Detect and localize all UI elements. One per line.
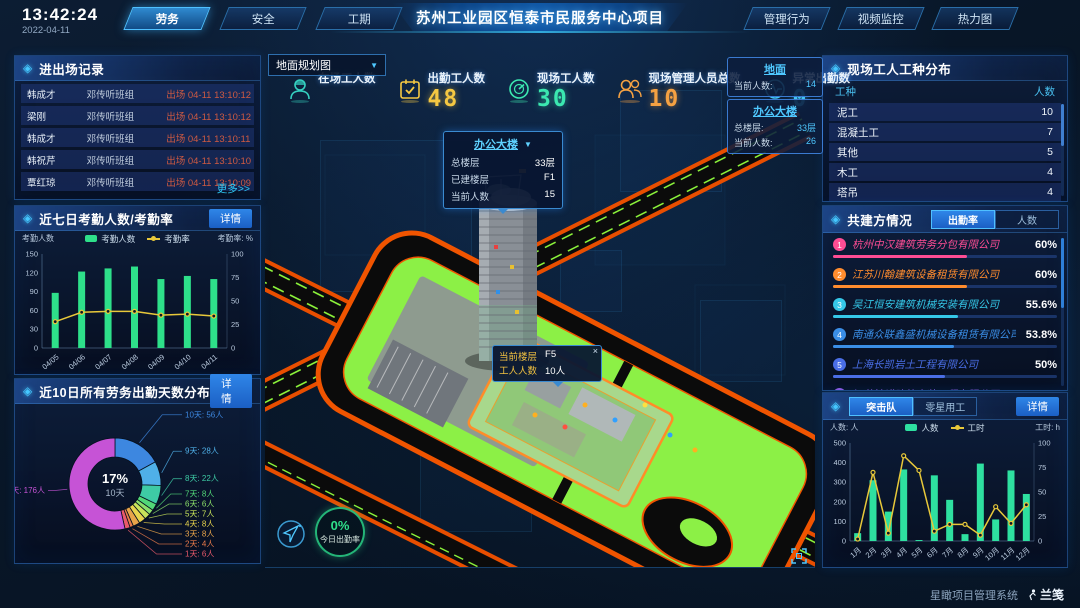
worker-name: 覃红琼 [27,175,87,189]
entry-exit-row: 梁刚邓传听班组出场 04-11 13:10:12 [21,106,254,125]
svg-text:50: 50 [231,297,239,306]
stat-value: 48 [428,88,486,111]
line-swatch-icon [147,238,160,240]
tab-headcount-label: 人数 [1017,212,1037,227]
scrollbar[interactable] [1061,238,1064,386]
worker-type-row: 木工4 [829,163,1061,181]
progress-fill [833,255,967,258]
column-header-count: 人数 [1034,84,1055,99]
progress-fill [833,375,945,378]
svg-text:60: 60 [30,306,38,315]
detail-button[interactable]: 详情 [209,209,252,228]
progress-fill [833,315,958,318]
right-axis-label: 工时: h [1035,422,1060,433]
svg-text:6天: 6人: 6天: 6人 [185,500,214,509]
diamond-icon: ◈ [23,61,32,75]
tooltip-row-value: F5 [545,349,556,363]
svg-text:04/09: 04/09 [146,352,166,371]
svg-text:90: 90 [30,287,38,296]
progress-track [833,375,1057,378]
tab-odd-jobs[interactable]: 零星用工 [913,397,977,416]
legend-item: 工时 [951,422,985,434]
legend-label: 人数 [921,422,938,434]
worker-count: 4 [1047,186,1053,198]
worker-count: 10 [1041,106,1053,118]
chevron-down-icon[interactable]: ▼ [524,140,532,149]
svg-text:04/10: 04/10 [173,352,193,371]
worker-name: 韩祝芹 [27,153,87,167]
card-row-label: 当前人数: [734,79,773,92]
tab-video-monitor-label: 视频监控 [858,11,904,27]
svg-text:30: 30 [30,325,38,334]
chevron-down-icon: ▼ [370,61,378,70]
building-popup[interactable]: 办公大楼 ▼ 总楼层33层 已建楼层F1 当前人数15 [443,131,563,209]
stat-site-workers: 现场工人数 30 [507,70,595,111]
tooltip-row-label: 当前楼层 [499,349,537,363]
svg-text:100: 100 [1038,439,1051,448]
svg-text:11月: 11月 [999,545,1017,562]
brand-logo: 兰笺 [1028,586,1064,603]
building-popup-title[interactable]: 办公大楼 [474,136,518,152]
bar-swatch-icon [905,424,917,431]
time-display: 13:42:24 [22,6,98,25]
exit-event: 出场 04-11 13:10:11 [166,131,248,145]
svg-text:25: 25 [1038,512,1046,521]
svg-text:10天: 10天 [105,488,124,498]
people-icon [617,77,643,103]
attendance-rate: 60% [1035,239,1057,251]
rank-badge: 2 [833,268,846,281]
line-swatch-icon [951,427,964,429]
svg-text:400: 400 [833,458,846,467]
left-axis-label: 考勤人数 [22,233,54,244]
assault-team-panel: ◈ 突击队零星用工 详情 人数: 人 人数 工时 工时: h 010020030… [822,392,1068,568]
progress-track [833,315,1057,318]
svg-text:0: 0 [34,344,38,353]
tab-attendance-rate-label: 出勤率 [948,212,978,227]
svg-text:0天: 176人: 0天: 176人 [15,486,45,495]
svg-text:10天: 56人: 10天: 56人 [185,410,223,419]
assault-tab-group: 突击队零星用工 [849,397,977,416]
worker-type-row: 泥工10 [829,103,1061,121]
footer: 星瞰项目管理系统 兰笺 [930,586,1064,603]
exit-event: 出场 04-11 13:10:10 [166,153,248,167]
attendance-rate: 50% [1035,359,1057,371]
team-name: 邓传听班组 [87,109,167,123]
ground-info-card[interactable]: 地面 当前人数:14 [727,57,823,97]
partner-row[interactable]: 4南通众联鑫盛机械设备租赁有限公司53.8% [823,323,1067,353]
svg-text:12月: 12月 [1014,545,1032,562]
legend-label: 考勤人数 [101,233,135,245]
left-tab-group: 劳务安全工期 [128,7,398,30]
svg-text:120: 120 [25,268,38,277]
svg-text:300: 300 [833,478,846,487]
worker-name: 梁刚 [27,109,87,123]
tab-heatmap-label: 热力图 [958,11,993,27]
tab-video-monitor[interactable]: 视频监控 [837,7,924,30]
map-view-value: 地面规划图 [276,57,331,73]
compass-icon [276,519,306,549]
company-name: 南通众联鑫盛机械设备租赁有限公司 [852,327,1016,342]
attendance-rate-value: 0% [331,519,350,532]
svg-text:3月: 3月 [879,545,894,559]
legend-label: 考勤率 [164,233,190,245]
attendance-bar-line-chart: 0306090120150025507510004/0504/0604/0704… [15,246,256,372]
svg-text:200: 200 [833,497,846,506]
worker-type: 混凝土工 [837,125,879,140]
svg-text:25: 25 [231,320,239,329]
attendance-rate-label: 今日出勤率 [320,534,360,545]
svg-text:500: 500 [833,439,846,448]
detail-button[interactable]: 详情 [210,374,252,408]
svg-text:150: 150 [25,250,38,259]
tab-headcount[interactable]: 人数 [995,210,1059,229]
card-row-value: 33层 [797,121,816,134]
date-display: 2022-04-11 [22,26,98,36]
assault-bar-line-chart: 010020030040050002550751001月2月3月4月5月6月7月… [823,435,1063,565]
right-axis-label: 考勤率: % [217,233,253,244]
distribution-donut-panel: ◈ 近10日所有劳务出勤天数分布 详情 10天: 56人9天: 28人8天: 2… [14,378,261,564]
stat-label: 现场工人数 [537,70,595,86]
tab-assault-team[interactable]: 突击队 [849,397,913,416]
svg-text:75: 75 [1038,463,1046,472]
tooltip-row-value: 10人 [545,363,565,377]
partner-row[interactable]: 1杭州中汉建筑劳务分包有限公司60% [823,233,1067,263]
popup-row-label: 已建楼层 [451,172,489,186]
team-name: 邓传听班组 [87,131,167,145]
card-title: 办公大楼 [734,103,816,119]
progress-track [833,285,1057,288]
rank-badge: 6 [833,388,846,391]
svg-text:0: 0 [231,344,235,353]
panel-title: 共建方情况 [847,210,912,229]
logo-mark-icon [1028,589,1037,601]
svg-text:4天: 8人: 4天: 8人 [185,520,214,529]
rank-badge: 4 [833,328,846,341]
svg-text:3天: 8人: 3天: 8人 [185,530,214,539]
tab-labor[interactable]: 劳务 [123,7,210,30]
partner-tab-group: 出勤率人数 [931,210,1059,229]
tooltip-row-label: 工人人数 [499,363,537,377]
rank-badge: 3 [833,298,846,311]
rank-badge: 5 [833,358,846,371]
panel-title: 现场工人工种分布 [847,59,951,78]
tab-schedule[interactable]: 工期 [315,7,402,30]
card-row-label: 当前人数: [734,136,773,149]
entry-exit-row: 韩成才邓传听班组出场 04-11 13:10:12 [21,84,254,103]
svg-text:1天: 6人: 1天: 6人 [185,550,214,559]
svg-text:1月: 1月 [848,545,863,559]
svg-text:0: 0 [842,537,846,546]
team-name: 邓传听班组 [87,153,167,167]
svg-text:04/05: 04/05 [40,352,60,371]
svg-text:75: 75 [231,273,239,282]
partner-row[interactable]: 2江苏川翰建筑设备租赁有限公司60% [823,263,1067,293]
svg-text:100: 100 [231,250,244,259]
diamond-icon: ◈ [23,211,32,225]
legend-item: 考勤率 [147,233,190,245]
card-row-value: 14 [806,79,816,92]
gauge-icon [507,77,531,103]
worker-type: 塔吊 [837,185,858,200]
legend-label: 工时 [968,422,985,434]
floor-tooltip: × 当前楼层F5 工人人数10人 [492,345,602,382]
popup-row-label: 总楼层 [451,155,480,169]
attendance-chart-panel: ◈ 近七日考勤人数/考勤率 详情 考勤人数 考勤人数 考勤率 考勤率: % 03… [14,205,261,375]
right-tab-group: 管理行为视频监控热力图 [748,7,1014,30]
bar-swatch-icon [85,235,97,242]
worker-type-row: 其他5 [829,143,1061,161]
svg-text:7天: 8人: 7天: 8人 [185,490,214,499]
worker-type-row: 塔吊4 [829,183,1061,201]
partner-row[interactable]: 3吴江恒安建筑机械安装有限公司55.6% [823,293,1067,323]
popup-row-value: 15 [544,189,555,203]
partner-row[interactable]: 5上海长凯岩土工程有限公司50% [823,353,1067,383]
svg-text:8月: 8月 [956,545,971,559]
popup-row-value: F1 [544,172,555,186]
worker-type: 木工 [837,165,858,180]
tab-safety-label: 安全 [252,11,275,27]
worker-icon [288,77,312,103]
entry-exit-row: 韩成才邓传听班组出场 04-11 13:10:11 [21,128,254,147]
svg-text:9月: 9月 [971,545,986,559]
tab-heatmap[interactable]: 热力图 [931,7,1018,30]
svg-text:50: 50 [1038,488,1046,497]
company-name: 吴江恒安建筑机械安装有限公司 [852,297,1016,312]
worker-count: 4 [1047,166,1053,178]
logo-text: 兰笺 [1040,586,1064,603]
title-glow-line [330,31,750,33]
worker-type-row: 混凝土工7 [829,123,1061,141]
svg-text:5天: 7人: 5天: 7人 [185,510,214,519]
svg-text:04/11: 04/11 [199,352,219,371]
tab-assault-team-label: 突击队 [866,399,896,414]
svg-text:17%: 17% [102,471,128,486]
svg-text:2天: 4人: 2天: 4人 [185,540,214,549]
card-row-value: 26 [806,136,816,149]
svg-text:100: 100 [833,517,846,526]
team-name: 邓传听班组 [87,175,167,189]
tab-management-behavior[interactable]: 管理行为 [743,7,830,30]
left-axis-label: 人数: 人 [830,422,858,433]
fullscreen-icon [791,548,807,564]
attendance-rate: 55.6% [1026,299,1057,311]
worker-name: 韩成才 [27,131,87,145]
svg-text:04/06: 04/06 [67,352,87,371]
svg-text:8天: 22人: 8天: 22人 [185,474,219,483]
stat-label: 出勤工人数 [428,70,486,86]
panel-title: 进出场记录 [39,59,104,78]
tab-management-behavior-label: 管理行为 [764,11,810,27]
team-name: 邓传听班组 [87,87,167,101]
popup-row-label: 当前人数 [451,189,489,203]
clock: 13:42:24 2022-04-11 [22,6,98,36]
compass-control[interactable] [276,519,306,554]
fullscreen-button[interactable] [791,548,807,569]
attendance-rate: 35.4% [1026,389,1057,392]
popup-row-value: 33层 [535,155,555,169]
company-name: 杭州中汉建筑劳务分包有限公司 [852,237,1025,252]
svg-text:0: 0 [1038,537,1042,546]
entry-exit-row: 韩祝芹邓传听班组出场 04-11 13:10:10 [21,150,254,169]
svg-text:4月: 4月 [894,545,909,559]
svg-text:5月: 5月 [910,545,925,559]
legend-item: 考勤人数 [85,233,135,245]
office-building-info-card[interactable]: 办公大楼 总楼层:33层 当前人数:26 [727,99,823,154]
tab-safety[interactable]: 安全 [219,7,306,30]
exit-event: 出场 04-11 13:10:12 [166,109,248,123]
partner-panel: ◈ 共建方情况 出勤率人数 1杭州中汉建筑劳务分包有限公司60%2江苏川翰建筑设… [822,205,1068,391]
rank-badge: 1 [833,238,846,251]
tab-schedule-label: 工期 [348,11,371,27]
map-view-select[interactable]: 地面规划图 ▼ [268,54,386,76]
close-icon[interactable]: × [593,346,598,356]
tab-attendance-rate[interactable]: 出勤率 [931,210,995,229]
entry-exit-panel: ◈ 进出场记录 韩成才邓传听班组出场 04-11 13:10:12梁刚邓传听班组… [14,55,261,200]
worker-type-panel: ◈ 现场工人工种分布 工种 人数 泥工10混凝土工7其他5木工4塔吊4 [822,55,1068,202]
svg-text:04/07: 04/07 [93,352,113,371]
worker-name: 韩成才 [27,87,87,101]
page-title: 苏州工业园区恒泰市民服务中心项目 [392,3,688,31]
system-name: 星瞰项目管理系统 [930,587,1018,603]
progress-fill [833,345,954,348]
diamond-icon: ◈ [23,384,32,398]
card-row-label: 总楼层: [734,121,764,134]
progress-track [833,345,1057,348]
exit-event: 出场 04-11 13:10:12 [166,87,248,101]
company-name: 上海长凯岩土工程有限公司 [852,357,1025,372]
panel-title: 近10日所有劳务出勤天数分布 [39,382,210,401]
calendar-check-icon [398,77,422,103]
tab-odd-jobs-label: 零星用工 [925,399,965,414]
worker-count: 5 [1047,146,1053,158]
card-title: 地面 [734,61,816,77]
svg-text:9天: 28人: 9天: 28人 [185,447,219,456]
stat-value: 30 [537,88,595,111]
tab-labor-label: 劳务 [156,11,179,27]
svg-text:6月: 6月 [925,545,940,559]
svg-text:7月: 7月 [940,545,955,559]
worker-type: 其他 [837,145,858,160]
stat-managers: 现场管理人员总数 10 [617,70,741,111]
scrollbar[interactable] [1061,104,1064,196]
svg-text:10月: 10月 [983,545,1001,562]
progress-track [833,255,1057,258]
today-attendance-badge: 0% 今日出勤率 [315,507,365,557]
svg-text:2月: 2月 [864,545,879,559]
panel-title: 近七日考勤人数/考勤率 [39,209,173,228]
svg-text:04/08: 04/08 [120,352,140,371]
legend-item: 人数 [905,422,938,434]
more-link[interactable]: 更多>> [217,181,250,196]
diamond-icon: ◈ [831,212,840,226]
attendance-rate: 60% [1035,269,1057,281]
worker-count: 7 [1047,126,1053,138]
diamond-icon: ◈ [831,399,840,413]
partner-row[interactable]: 6江苏法诺建筑安装工程有限公司35.4% [823,383,1067,391]
stat-attendance-workers: 出勤工人数 48 [398,70,486,111]
detail-button[interactable]: 详情 [1016,397,1059,416]
attendance-rate: 53.8% [1026,329,1057,341]
company-name: 江苏川翰建筑设备租赁有限公司 [852,267,1025,282]
company-name: 江苏法诺建筑安装工程有限公司 [852,387,1016,391]
progress-fill [833,285,967,288]
attendance-days-donut-chart: 10天: 56人9天: 28人8天: 22人7天: 8人6天: 6人5天: 7人… [15,404,256,560]
